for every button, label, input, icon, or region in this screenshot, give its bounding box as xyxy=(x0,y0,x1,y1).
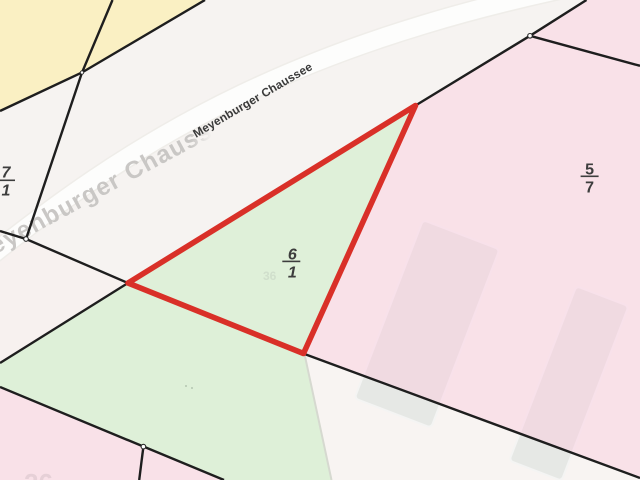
svg-text:36: 36 xyxy=(263,269,277,283)
svg-text:1: 1 xyxy=(2,183,11,200)
svg-text:7: 7 xyxy=(585,179,594,196)
svg-text:26: 26 xyxy=(24,468,53,480)
svg-text:7: 7 xyxy=(2,164,12,181)
svg-text:1: 1 xyxy=(288,264,297,281)
